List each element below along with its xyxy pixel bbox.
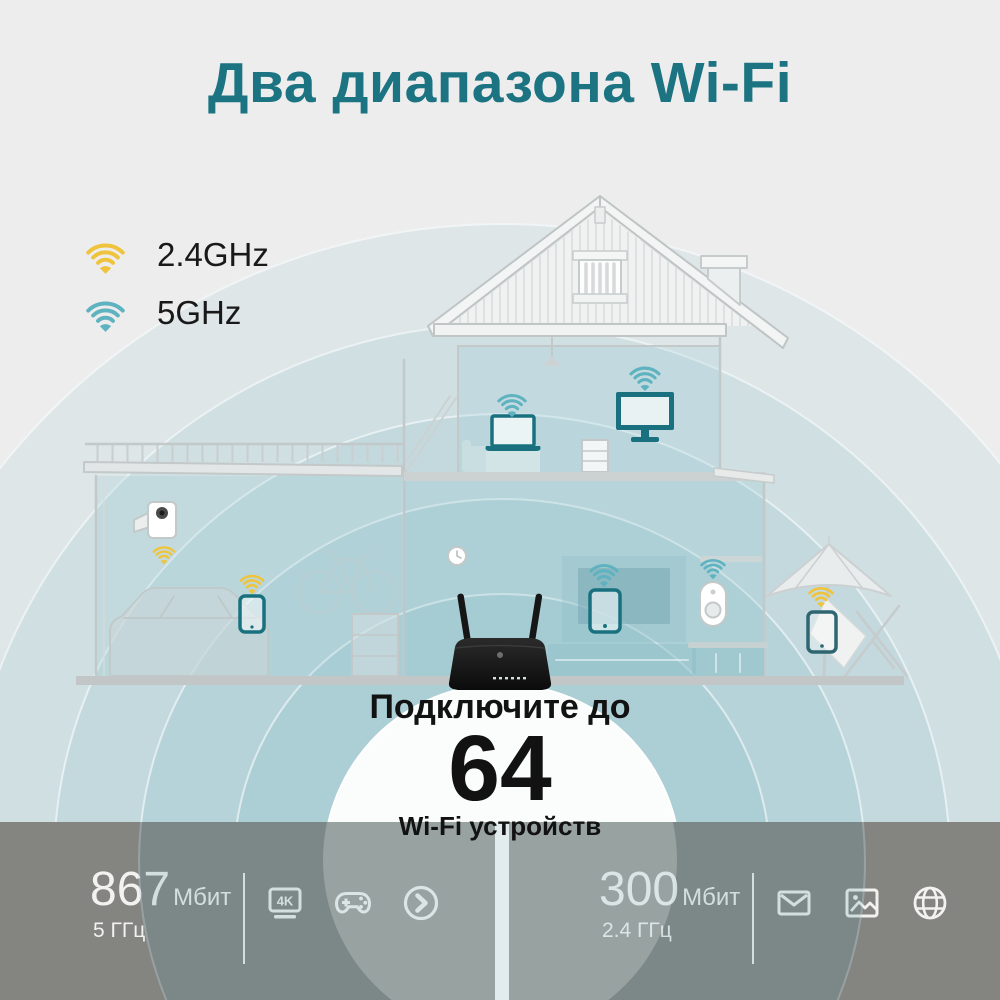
deck-chair bbox=[810, 598, 907, 676]
legend-label: 5GHz bbox=[157, 296, 241, 329]
speed-readout: 300 Мбит bbox=[599, 866, 740, 914]
wifi-signal-2-4-icon bbox=[809, 588, 832, 607]
panel-divider bbox=[752, 873, 754, 964]
attic-window bbox=[573, 251, 627, 303]
product-banner: Два диапазона Wi-Fi 2.4GHz 5GHz Подключи… bbox=[0, 0, 1000, 1000]
storage-shelf bbox=[352, 614, 398, 676]
gamepad-icon bbox=[333, 883, 373, 923]
use-case-icons bbox=[774, 883, 950, 923]
band-label: 5 ГГц bbox=[93, 919, 145, 943]
speed-readout: 867 Мбит bbox=[90, 866, 231, 914]
panel-divider bbox=[243, 873, 245, 964]
tablet bbox=[590, 590, 620, 632]
roof bbox=[428, 196, 788, 348]
wifi-signal-2-4-icon bbox=[154, 547, 175, 564]
band-legend: 2.4GHz 5GHz bbox=[82, 232, 269, 348]
smartphone-garage bbox=[240, 596, 264, 632]
router bbox=[435, 585, 565, 697]
use-case-icons: 4K bbox=[265, 883, 441, 923]
mail-icon bbox=[774, 883, 814, 923]
speed-panel-2-4ghz: 300 Мбит 2.4 ГГц bbox=[509, 822, 1000, 1000]
band-label: 2.4 ГГц bbox=[602, 919, 672, 943]
speed-unit: Мбит bbox=[173, 884, 231, 912]
patio-umbrella bbox=[767, 536, 891, 676]
photo-icon bbox=[842, 883, 882, 923]
chimney bbox=[701, 256, 747, 305]
callout-count: 64 bbox=[0, 724, 1000, 813]
play-circle-icon bbox=[401, 883, 441, 923]
legend-item-2-4ghz: 2.4GHz bbox=[82, 232, 269, 276]
wifi-2-4ghz-icon bbox=[82, 233, 129, 275]
wifi-5ghz-icon bbox=[82, 291, 129, 333]
smartphone-patio bbox=[808, 612, 836, 652]
smart-tv bbox=[616, 392, 674, 442]
legend-label: 2.4GHz bbox=[157, 238, 269, 271]
callout-suffix: Wi-Fi устройств bbox=[0, 811, 1000, 842]
globe-icon bbox=[910, 883, 950, 923]
tv-4k-label: 4K bbox=[277, 894, 294, 909]
floor-slab bbox=[404, 472, 766, 481]
wifi-signal-5-icon bbox=[499, 396, 525, 418]
speed-unit: Мбит bbox=[682, 884, 740, 912]
speed-panel-5ghz: 867 Мбит 5 ГГц 4K bbox=[0, 822, 495, 1000]
wifi-signal-5-icon bbox=[631, 368, 659, 391]
wifi-signal-2-4-icon bbox=[241, 576, 263, 594]
bicycle bbox=[299, 551, 395, 613]
laptop bbox=[486, 416, 541, 451]
page-title: Два диапазона Wi-Fi bbox=[0, 50, 1000, 116]
router-logo bbox=[497, 652, 503, 658]
speed-value: 867 bbox=[90, 866, 170, 914]
garage bbox=[84, 444, 404, 676]
wifi-signal-5-icon bbox=[701, 560, 724, 579]
panels-gap bbox=[495, 822, 509, 1000]
wifi-signal-5-icon bbox=[591, 566, 617, 588]
smart-plug bbox=[700, 582, 726, 626]
security-camera bbox=[134, 502, 176, 538]
car bbox=[110, 588, 268, 676]
device-count-callout: Подключите до 64 Wi-Fi устройств bbox=[0, 690, 1000, 842]
legend-item-5ghz: 5GHz bbox=[82, 290, 269, 334]
speed-value: 300 bbox=[599, 866, 679, 914]
tv-4k-icon: 4K bbox=[265, 883, 305, 923]
